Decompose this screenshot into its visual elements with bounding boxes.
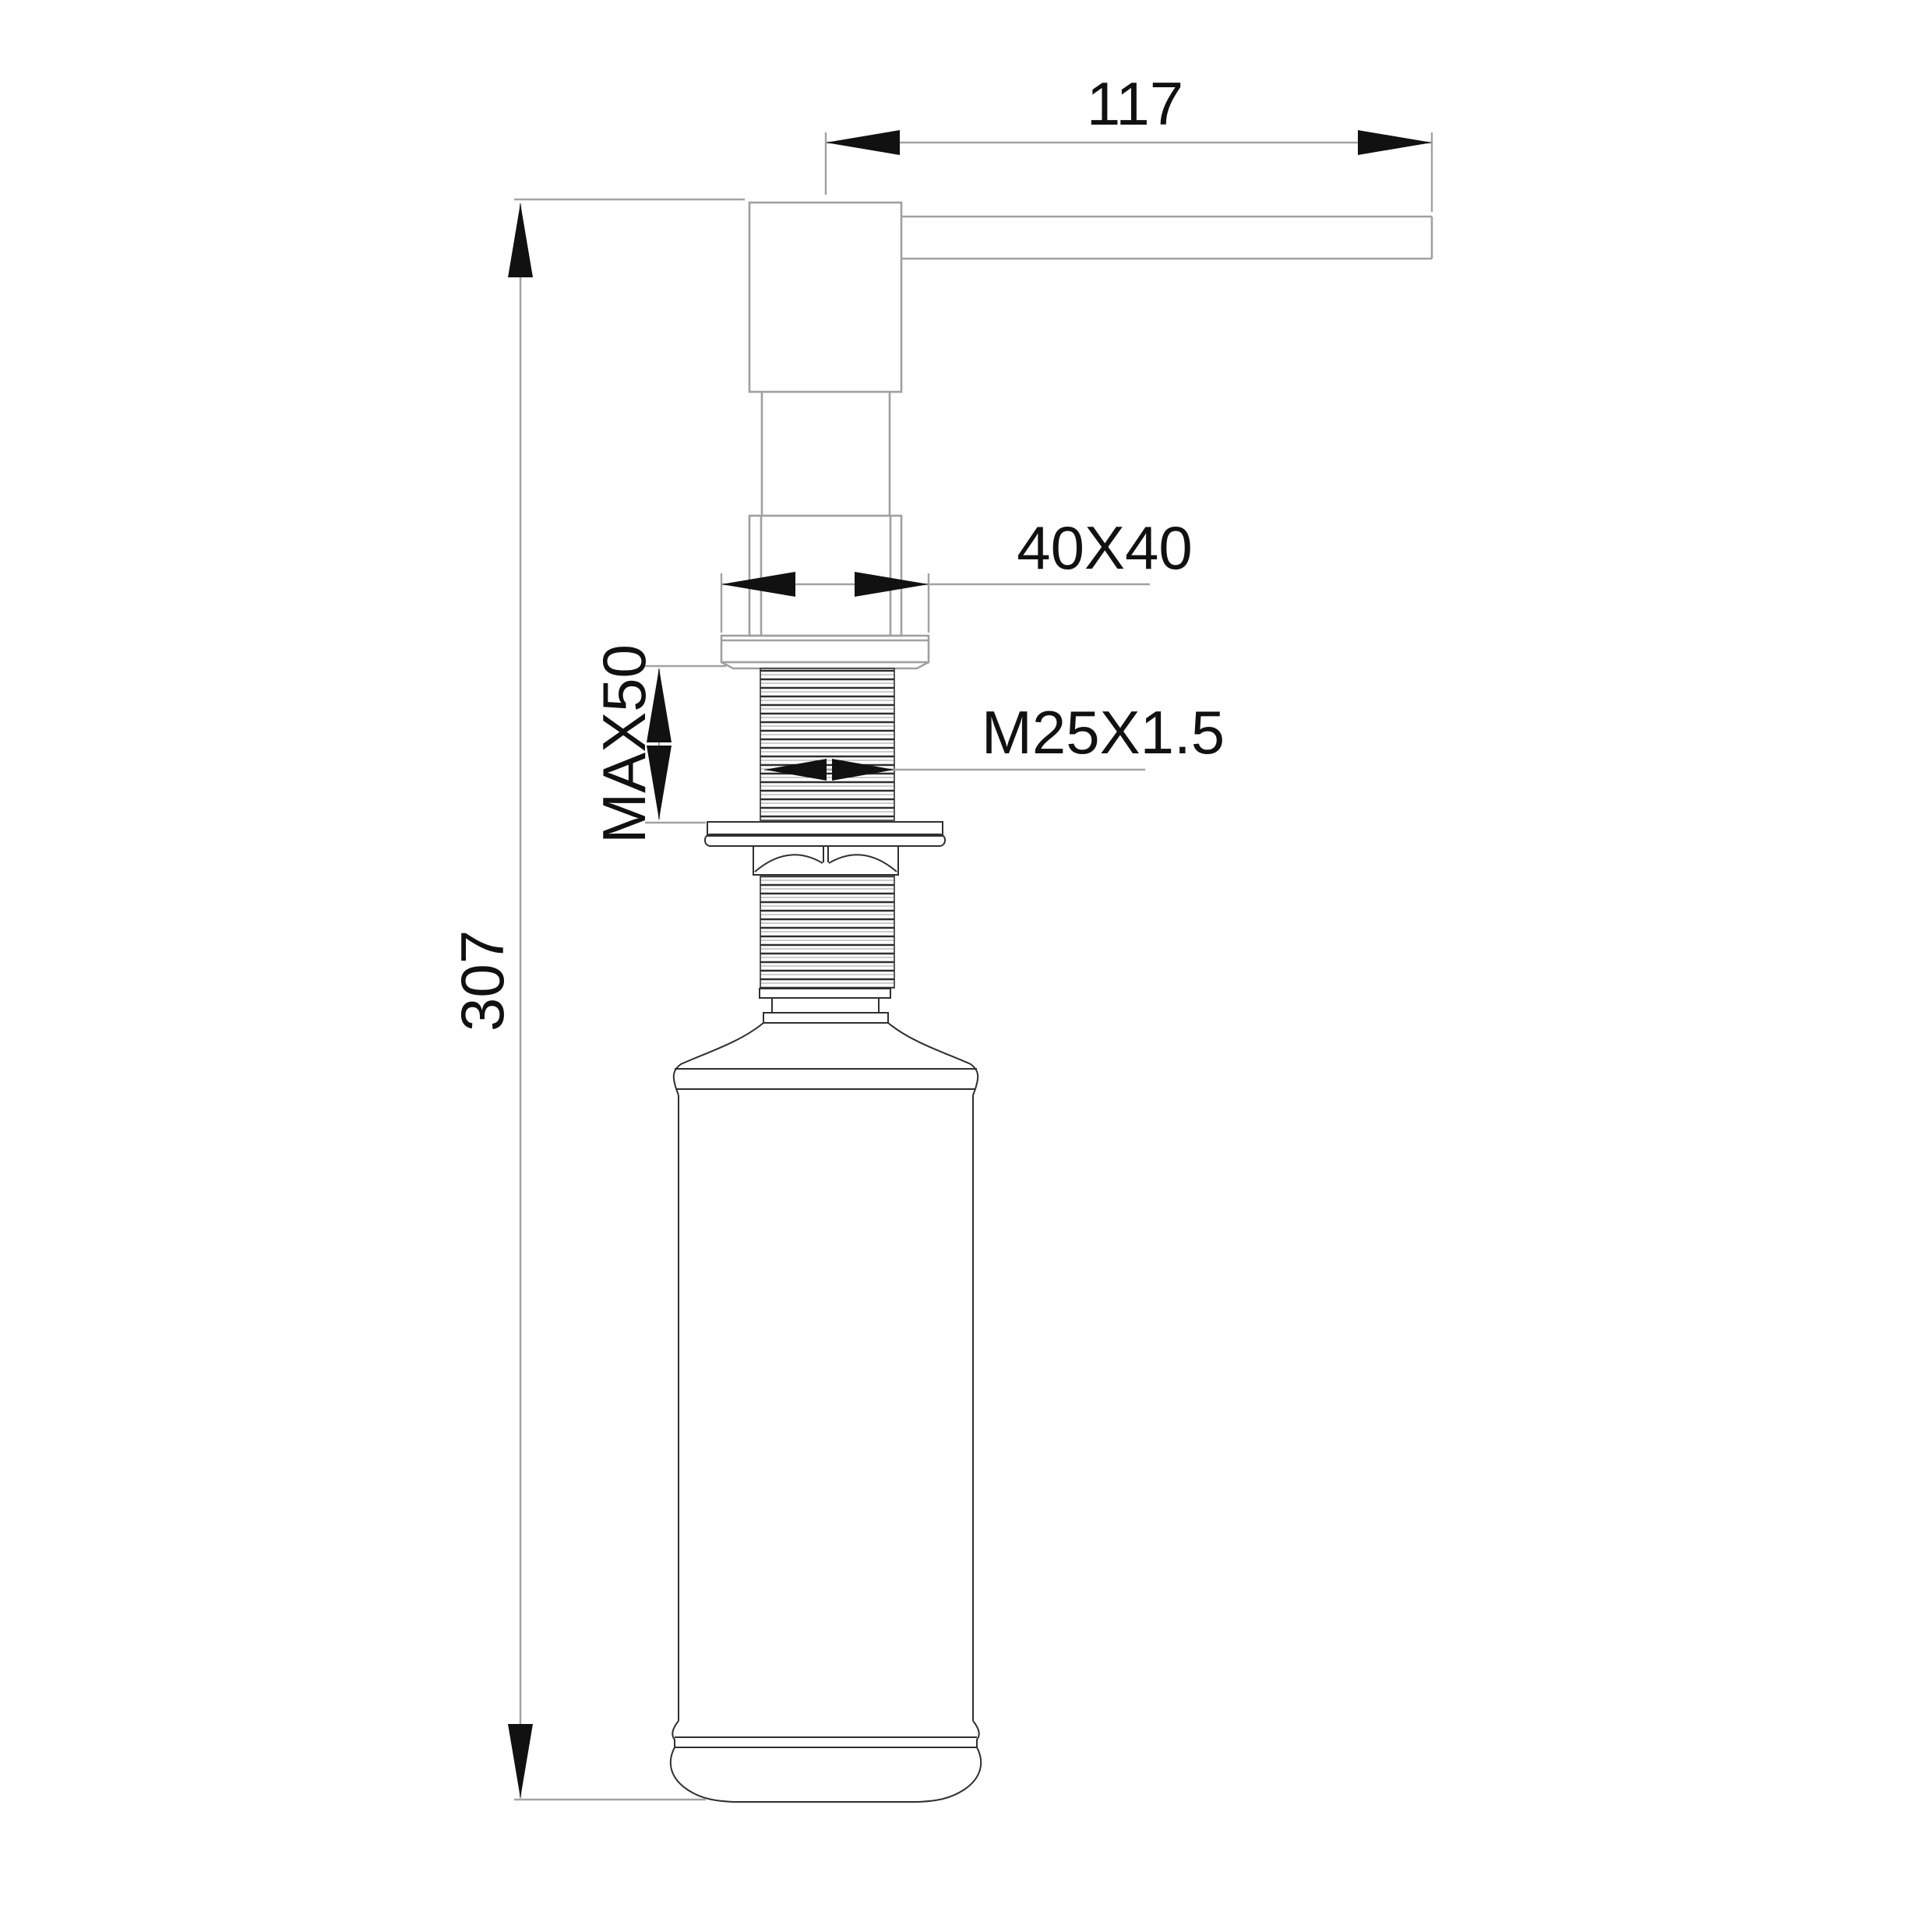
hex-nut-arc-right (829, 855, 897, 872)
dim-m25-label: M25X1.5 (982, 698, 1225, 767)
dim-max-thickness: MAX50 (590, 644, 726, 844)
bottle-shoulder-right (888, 1023, 978, 1095)
lower-thread (760, 876, 894, 988)
dim-arrow-down-icon (508, 1724, 533, 1798)
dim-arrow-left-icon (826, 130, 900, 155)
bottle-neck-collar (772, 998, 879, 1013)
bottle-bottom (671, 1721, 981, 1802)
hex-nut (753, 846, 898, 875)
collar-block-outline (749, 516, 901, 636)
pump-head (749, 203, 901, 516)
dim-arrow-up-icon (508, 203, 533, 277)
dim-spout-reach: 117 (826, 69, 1432, 212)
pump-head-body (749, 203, 901, 392)
washer (705, 822, 945, 846)
spout (901, 217, 1432, 259)
dim-arrow-right-icon (855, 572, 929, 597)
bottle (671, 989, 981, 1802)
technical-drawing-page: 117 40X40 MAX50 M25X1.5 307 (0, 0, 1932, 1932)
bottle-neck-plate (763, 1013, 888, 1023)
soap-dispenser-drawing: 117 40X40 MAX50 M25X1.5 307 (0, 0, 1932, 1932)
dim-307-label: 307 (448, 930, 516, 1031)
hex-nut-arc-left (755, 855, 823, 872)
dim-flange-square: 40X40 (721, 513, 1193, 633)
dim-max50-label: MAX50 (590, 644, 658, 844)
dim-total-height: 307 (448, 199, 745, 1800)
collar-block (749, 516, 901, 636)
bottle-shoulder-left (674, 1023, 763, 1095)
bottle-neck-ring (760, 989, 890, 998)
dim-117-label: 117 (1087, 69, 1183, 138)
hex-nut-outline (753, 846, 898, 875)
upper-thread (760, 668, 894, 820)
dim-arrow-right-icon (1358, 130, 1432, 155)
upper-thread-section (760, 668, 894, 820)
lower-thread-section (760, 876, 894, 988)
dim-40x40-label: 40X40 (1017, 513, 1193, 582)
flange-plate (721, 636, 929, 668)
dim-arrow-left-icon (721, 572, 795, 597)
